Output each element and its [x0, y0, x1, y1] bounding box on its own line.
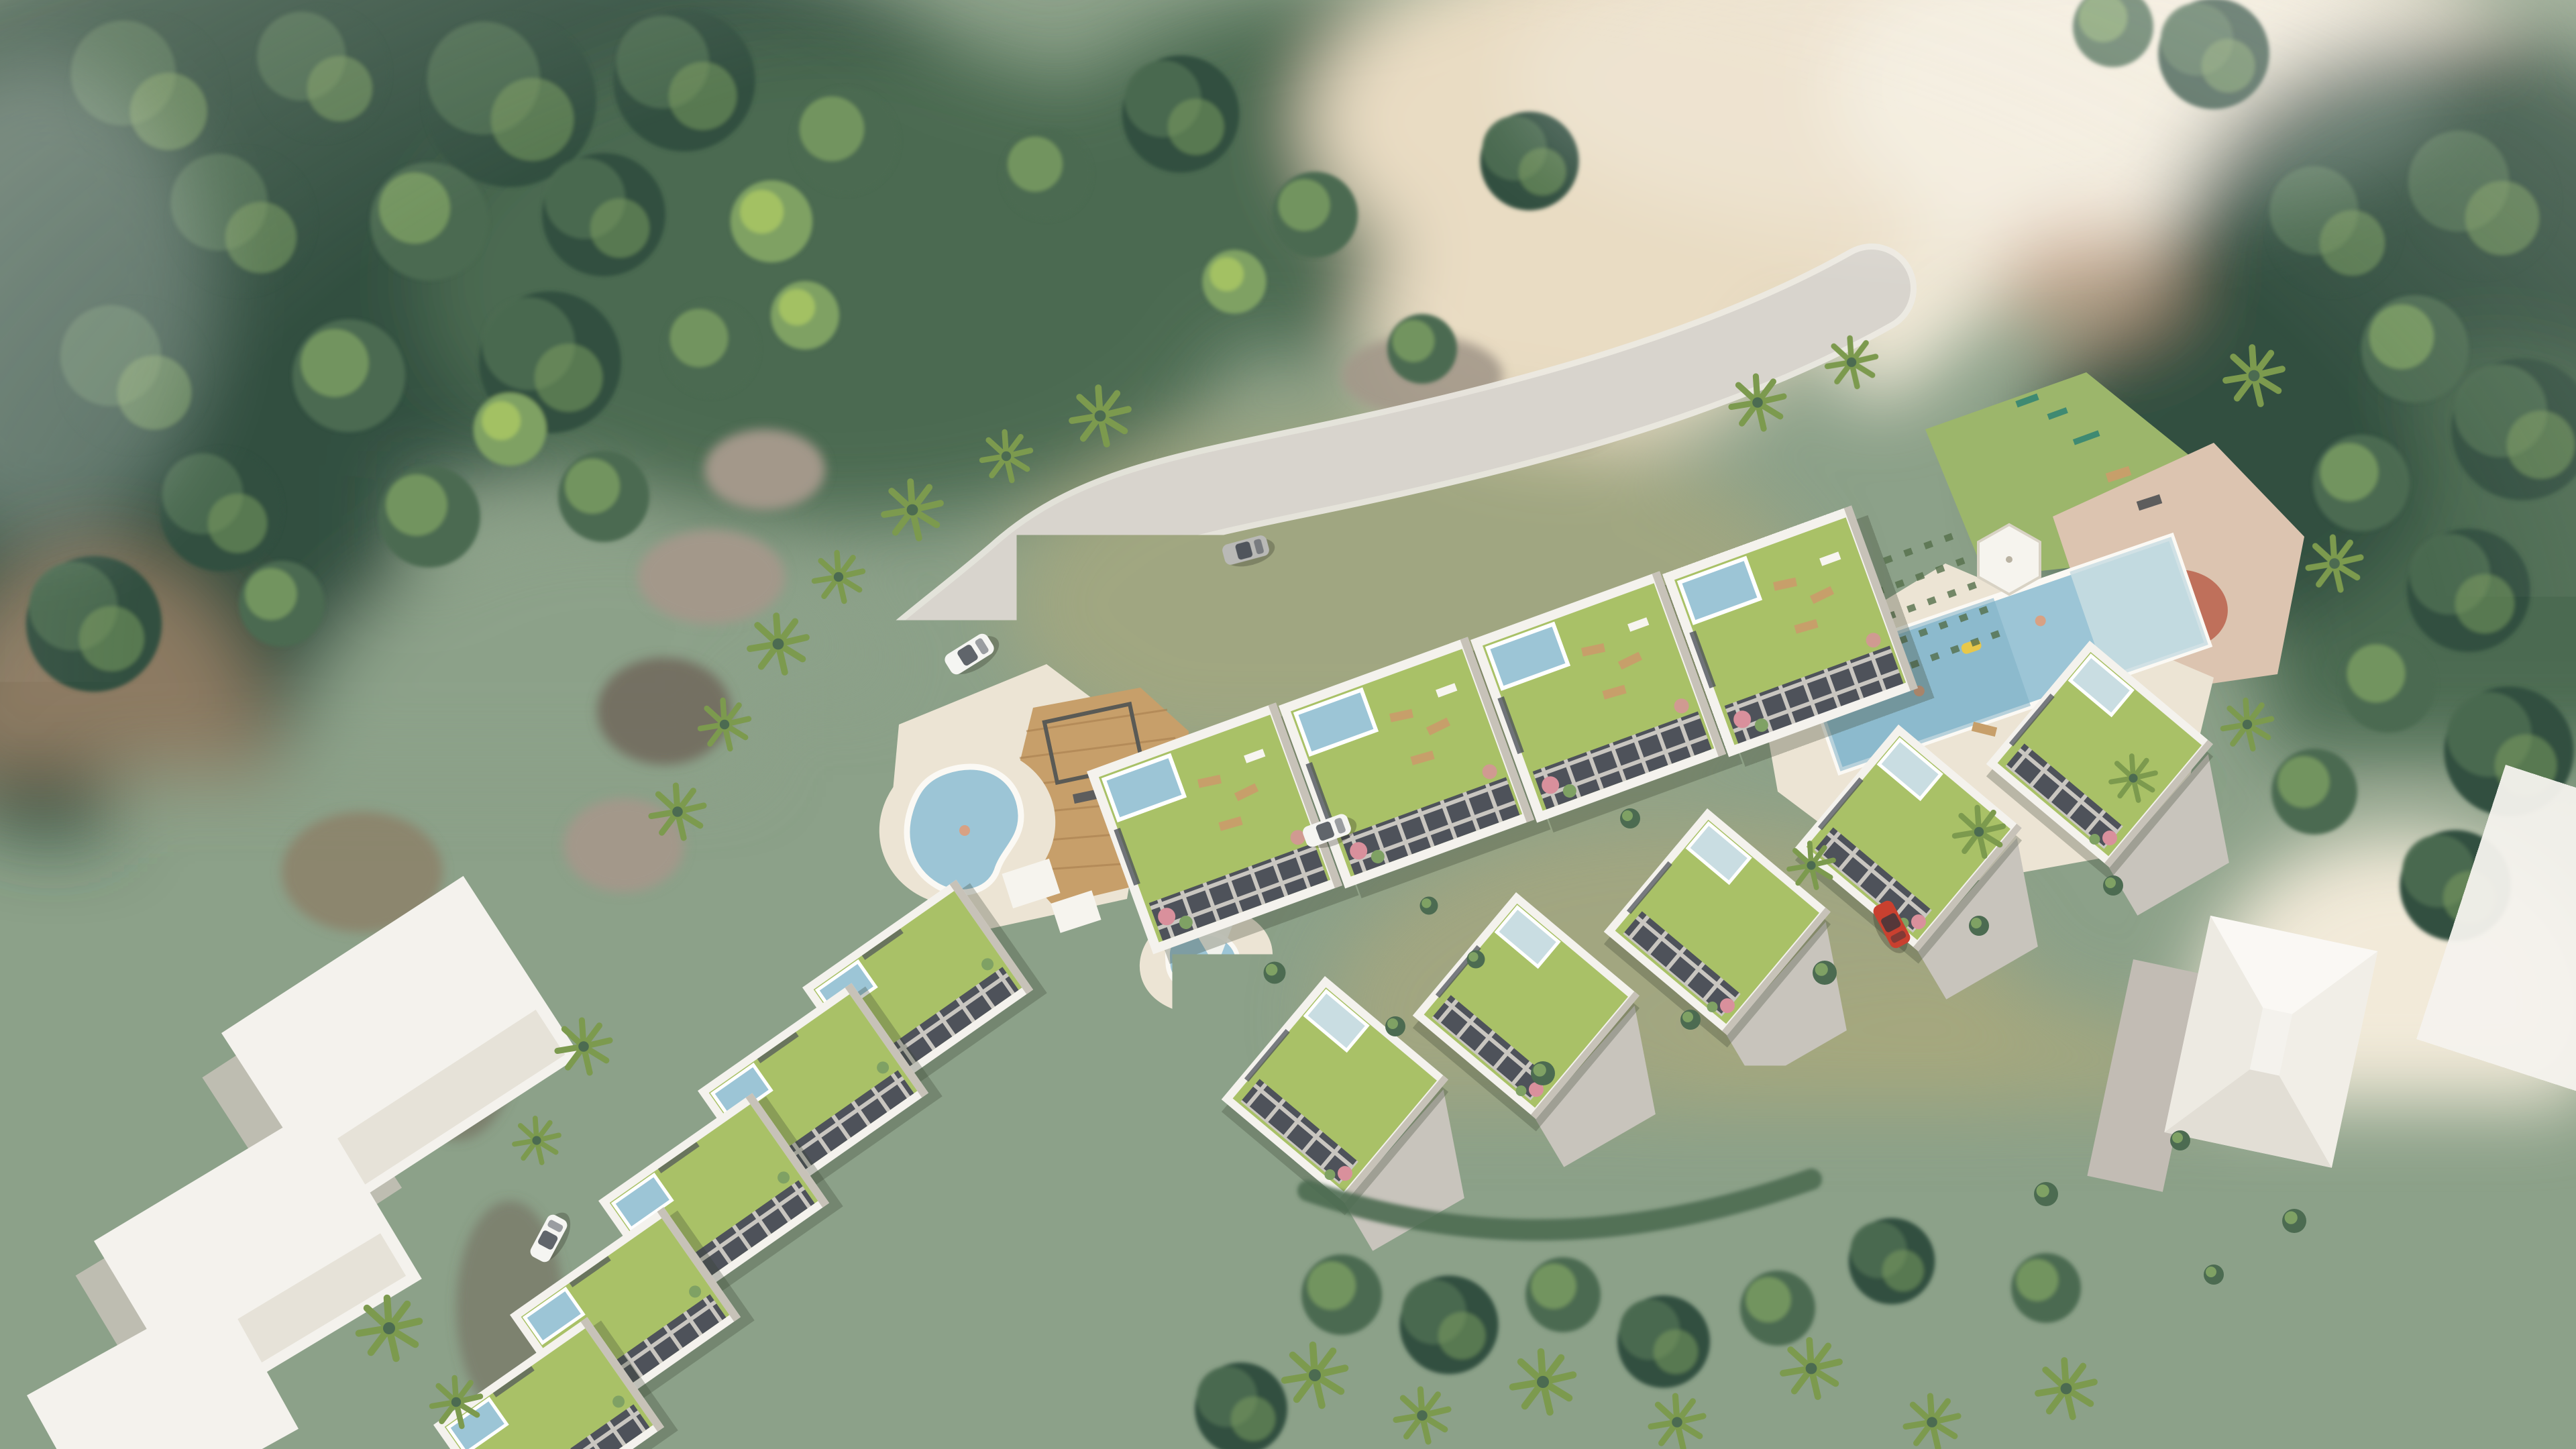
haze-overlay — [0, 0, 2576, 1449]
tagline-rule-left — [2313, 1429, 2348, 1432]
masterplan-scene: GOGO ESTATES SINCE 2001 — [0, 0, 2576, 1449]
aerial-render-canvas: GOGO ESTATES SINCE 2001 — [0, 0, 2576, 1449]
brand-tagline: SINCE 2001 — [2356, 1419, 2502, 1442]
brand-name: GOGO — [2314, 1322, 2543, 1390]
tagline-rule-right — [2509, 1429, 2544, 1432]
